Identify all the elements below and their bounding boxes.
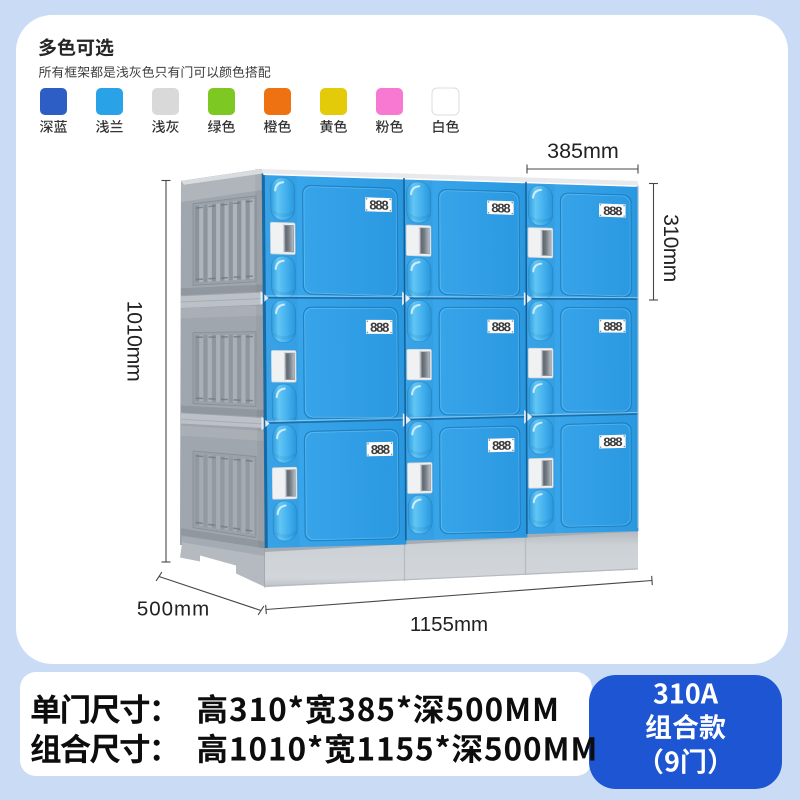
svg-text:888: 888 [492, 319, 511, 334]
svg-text:500mm: 500mm [137, 598, 210, 621]
svg-text:888: 888 [370, 320, 389, 335]
svg-text:888: 888 [492, 438, 511, 453]
svg-text:888: 888 [371, 442, 390, 458]
svg-text:888: 888 [491, 200, 510, 215]
svg-text:888: 888 [603, 204, 622, 218]
svg-text:385mm: 385mm [547, 139, 619, 163]
svg-text:1155mm: 1155mm [410, 613, 488, 636]
svg-text:888: 888 [369, 197, 388, 213]
svg-text:888: 888 [603, 320, 622, 334]
svg-text:888: 888 [603, 435, 622, 449]
svg-text:1010mm: 1010mm [123, 301, 147, 382]
svg-text:310mm: 310mm [659, 214, 682, 282]
